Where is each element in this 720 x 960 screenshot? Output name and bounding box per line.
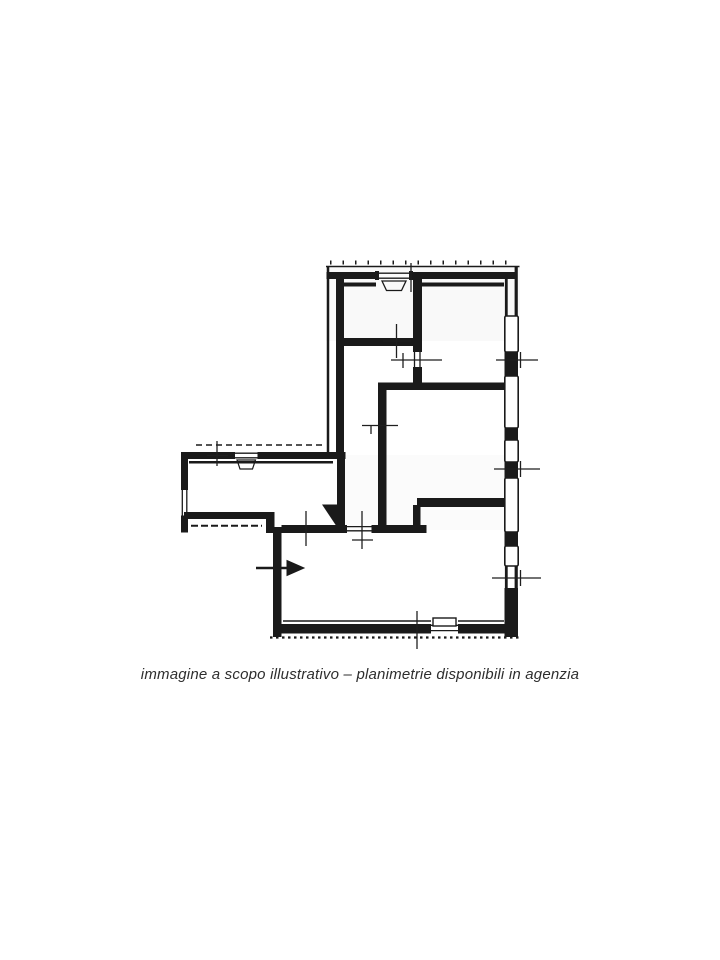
wing-end-window bbox=[182, 490, 187, 516]
scan-artifacts bbox=[326, 267, 520, 530]
left-wing-walls bbox=[181, 445, 346, 533]
floor-plan bbox=[0, 0, 720, 960]
floor-plan-drawing bbox=[0, 0, 720, 960]
south-window bbox=[431, 618, 458, 631]
door-swing-triangle bbox=[322, 505, 337, 528]
page: immagine a scopo illustrativo – planimet… bbox=[0, 0, 720, 960]
top-wall-hatching bbox=[326, 263, 520, 267]
caption-text: immagine a scopo illustrativo – planimet… bbox=[0, 666, 720, 683]
